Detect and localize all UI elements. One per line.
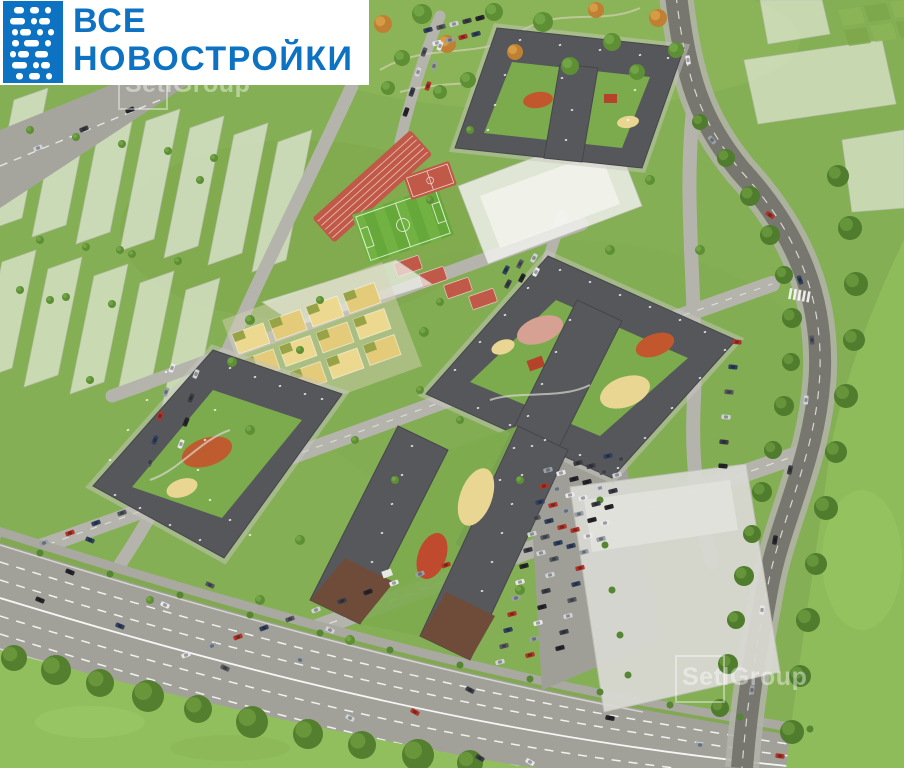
logo-banner: ВСЕ НОВОСТРОЙКИ <box>0 0 369 85</box>
aerial-render: SetlGroup SetlGroup ВСЕ НОВОСТРОЙКИ <box>0 0 904 768</box>
logo-text-line1: ВСЕ <box>73 4 353 38</box>
logo-text: ВСЕ НОВОСТРОЙКИ <box>73 4 353 76</box>
watermark-text: SetlGroup <box>682 663 807 692</box>
north-complex <box>455 28 684 168</box>
logo-text-line2: НОВОСТРОЙКИ <box>73 42 353 76</box>
aerial-scene <box>0 0 904 768</box>
logo-icon <box>3 1 63 83</box>
